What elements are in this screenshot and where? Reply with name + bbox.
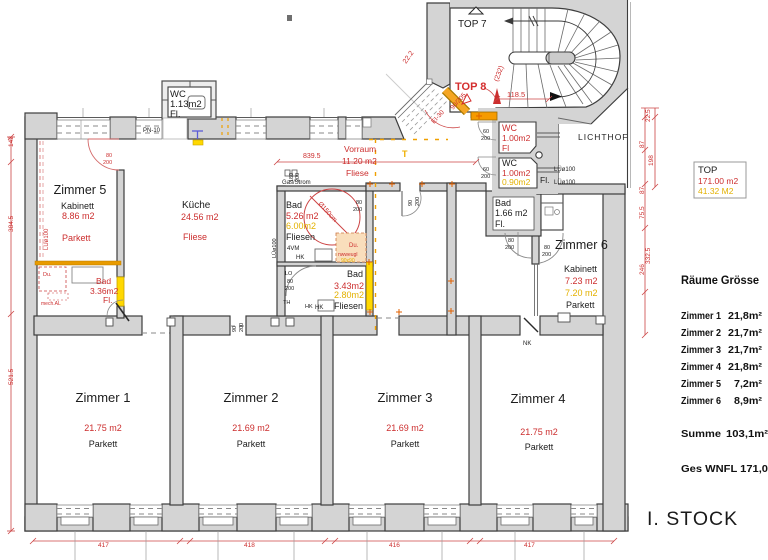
svg-text:384.5: 384.5 [8, 215, 15, 232]
svg-text:839.5: 839.5 [303, 153, 321, 160]
svg-text:T: T [402, 149, 408, 159]
svg-text:103,1m²: 103,1m² [726, 428, 768, 440]
svg-text:Zimmer 5: Zimmer 5 [681, 378, 721, 390]
svg-text:332.5: 332.5 [645, 247, 652, 264]
svg-text:21.69 m2: 21.69 m2 [386, 423, 424, 433]
svg-text:LÜø100: LÜø100 [43, 228, 50, 250]
svg-text:246: 246 [639, 264, 646, 275]
svg-text:Bad: Bad [495, 198, 511, 208]
svg-text:118.5: 118.5 [507, 90, 525, 99]
svg-text:200: 200 [542, 252, 551, 258]
svg-text:LÜø100: LÜø100 [554, 179, 576, 186]
svg-text:Fliese: Fliese [183, 232, 207, 242]
svg-text:Zimmer 1: Zimmer 1 [76, 390, 131, 405]
svg-text:Ges WNFL 171,0: Ges WNFL 171,0 [681, 463, 768, 475]
svg-text:TOP 7: TOP 7 [458, 19, 487, 30]
svg-text:7,2m²: 7,2m² [734, 378, 763, 390]
svg-text:1.00m2: 1.00m2 [502, 133, 531, 143]
svg-text:521.5: 521.5 [8, 368, 15, 385]
svg-text:Zimmer 3: Zimmer 3 [681, 344, 721, 356]
svg-text:200: 200 [415, 197, 421, 206]
svg-text:Zimmer 4: Zimmer 4 [681, 361, 721, 373]
svg-text:1.66 m2: 1.66 m2 [495, 208, 528, 218]
svg-text:Zimmer 6: Zimmer 6 [681, 395, 721, 407]
svg-text:200: 200 [481, 174, 490, 180]
svg-text:PN-10: PN-10 [143, 128, 161, 134]
svg-text:200: 200 [239, 323, 245, 332]
svg-text:4VM: 4VM [287, 246, 299, 252]
svg-text:21.75 m2: 21.75 m2 [520, 427, 558, 437]
svg-text:Bad: Bad [286, 200, 302, 210]
svg-text:Fliese: Fliese [346, 168, 369, 178]
svg-text:200: 200 [505, 245, 514, 251]
svg-text:0.90m2: 0.90m2 [502, 177, 531, 187]
svg-text:I. STOCK: I. STOCK [647, 508, 738, 530]
svg-text:21,8m²: 21,8m² [728, 310, 763, 322]
svg-text:60: 60 [483, 129, 489, 135]
svg-text:Fl.: Fl. [540, 175, 549, 185]
svg-text:Fl.: Fl. [170, 109, 181, 120]
svg-text:Fl.: Fl. [495, 219, 505, 229]
svg-text:Du.: Du. [43, 272, 52, 278]
svg-text:416: 416 [389, 542, 400, 549]
svg-text:NK: NK [523, 341, 531, 347]
svg-text:24.56 m2: 24.56 m2 [181, 212, 219, 222]
svg-text:417: 417 [98, 542, 109, 549]
svg-text:Bad: Bad [347, 269, 363, 279]
svg-text:Fliesen: Fliesen [286, 232, 315, 242]
svg-text:Fl: Fl [502, 143, 509, 153]
svg-text:Parkett: Parkett [391, 439, 420, 449]
svg-text:Zimmer 3: Zimmer 3 [378, 390, 433, 405]
svg-text:171.00 m2: 171.00 m2 [698, 176, 738, 186]
svg-text:11.20 m2: 11.20 m2 [342, 156, 377, 166]
svg-text:Summe: Summe [681, 428, 721, 440]
svg-text:Zimmer 5: Zimmer 5 [54, 183, 107, 197]
svg-text:Parkett: Parkett [566, 300, 595, 310]
svg-text:LICHTHOF: LICHTHOF [578, 132, 629, 142]
svg-text:7.20 m2: 7.20 m2 [565, 288, 598, 298]
svg-text:Vorraum: Vorraum [344, 144, 376, 154]
svg-text:Kabinett: Kabinett [564, 264, 598, 274]
svg-text:Parkett: Parkett [237, 439, 266, 449]
svg-text:Fliesen: Fliesen [334, 301, 363, 311]
svg-text:90x90: 90x90 [341, 258, 355, 264]
svg-text:Zimmer 6: Zimmer 6 [555, 238, 608, 252]
svg-text:LÜø100: LÜø100 [271, 238, 278, 258]
svg-text:22.5: 22.5 [645, 109, 652, 122]
svg-text:200: 200 [295, 173, 301, 182]
svg-text:Kabinett: Kabinett [61, 201, 95, 211]
svg-text:80: 80 [544, 245, 550, 251]
svg-text:Parkett: Parkett [525, 442, 554, 452]
svg-text:6.00m2: 6.00m2 [286, 221, 316, 231]
svg-text:8,9m²: 8,9m² [734, 395, 763, 407]
svg-text:LÜø100: LÜø100 [554, 166, 576, 173]
svg-text:80: 80 [356, 200, 362, 206]
svg-text:5.26 m2: 5.26 m2 [286, 211, 319, 221]
svg-text:418: 418 [244, 542, 255, 549]
svg-text:Parkett: Parkett [62, 233, 91, 243]
svg-text:21,7m²: 21,7m² [728, 344, 763, 356]
svg-text:Zimmer 1: Zimmer 1 [681, 310, 721, 322]
svg-text:TOP: TOP [698, 165, 717, 176]
svg-text:41.32 M2: 41.32 M2 [698, 186, 734, 196]
svg-text:87: 87 [639, 186, 646, 194]
svg-text:142: 142 [8, 136, 15, 147]
svg-text:Zimmer 4: Zimmer 4 [511, 391, 566, 406]
svg-text:2.80m2: 2.80m2 [334, 290, 364, 300]
svg-text:200: 200 [285, 286, 294, 292]
svg-text:80: 80 [508, 238, 514, 244]
svg-text:80: 80 [106, 153, 112, 159]
svg-text:200: 200 [103, 160, 112, 166]
svg-text:80: 80 [287, 279, 293, 285]
svg-text:Parkett: Parkett [89, 439, 118, 449]
svg-text:60: 60 [483, 167, 489, 173]
svg-text:75.5: 75.5 [639, 206, 646, 219]
svg-text:TH: TH [283, 300, 290, 306]
svg-text:WC: WC [502, 158, 517, 168]
svg-text:HK: HK [315, 305, 323, 311]
svg-text:417: 417 [524, 542, 535, 549]
svg-text:87: 87 [639, 140, 646, 148]
svg-text:8.86 m2: 8.86 m2 [62, 211, 95, 221]
svg-text:90: 90 [232, 326, 238, 332]
svg-text:Zimmer 2: Zimmer 2 [681, 327, 721, 339]
svg-text:LO: LO [285, 271, 293, 277]
svg-text:WC: WC [502, 123, 517, 133]
svg-text:21.69 m2: 21.69 m2 [232, 423, 270, 433]
svg-text:90: 90 [408, 200, 414, 206]
svg-text:HK: HK [296, 255, 304, 261]
svg-text:200: 200 [353, 207, 362, 213]
svg-text:Küche: Küche [182, 200, 211, 211]
svg-text:Du.: Du. [349, 243, 359, 249]
svg-text:HK: HK [305, 304, 313, 310]
svg-text:200: 200 [481, 136, 490, 142]
svg-text:Bad: Bad [96, 276, 111, 286]
svg-text:7.23 m2: 7.23 m2 [565, 276, 598, 286]
svg-text:TOP 8: TOP 8 [455, 81, 486, 93]
svg-text:198: 198 [648, 155, 655, 166]
svg-text:Räume Grösse: Räume Grösse [681, 275, 759, 287]
svg-text:21,7m²: 21,7m² [728, 327, 763, 339]
svg-text:mech.AL: mech.AL [41, 301, 61, 307]
svg-text:21,8m²: 21,8m² [728, 361, 763, 373]
svg-text:Zimmer 2: Zimmer 2 [224, 390, 279, 405]
svg-text:Fl.: Fl. [103, 295, 112, 305]
svg-text:21.75 m2: 21.75 m2 [84, 423, 122, 433]
